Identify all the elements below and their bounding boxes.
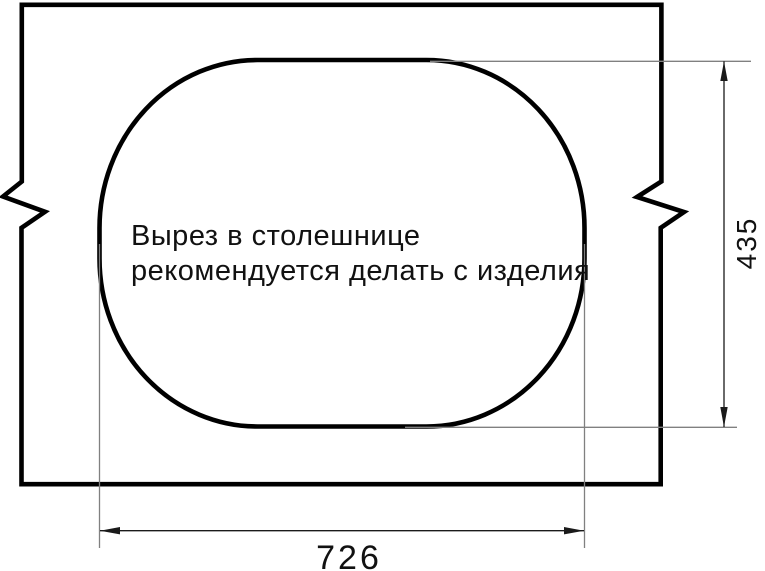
dimension-height-arrow-top bbox=[720, 61, 727, 81]
dimension-width-arrow-right bbox=[564, 527, 584, 534]
dimension-width-arrow-left bbox=[100, 527, 120, 534]
dimension-label-width: 726 bbox=[316, 539, 382, 571]
cutout-note: Вырез в столешнице рекомендуется делать … bbox=[131, 219, 590, 289]
cutout-note-line-1: Вырез в столешнице bbox=[131, 219, 590, 254]
dimension-label-height: 435 bbox=[731, 217, 763, 270]
technical-drawing-countertop-cutout: Вырез в столешнице рекомендуется делать … bbox=[0, 0, 765, 571]
cutout-note-line-2: рекомендуется делать с изделия bbox=[131, 254, 590, 289]
dimension-height-arrow-bottom bbox=[720, 407, 727, 427]
